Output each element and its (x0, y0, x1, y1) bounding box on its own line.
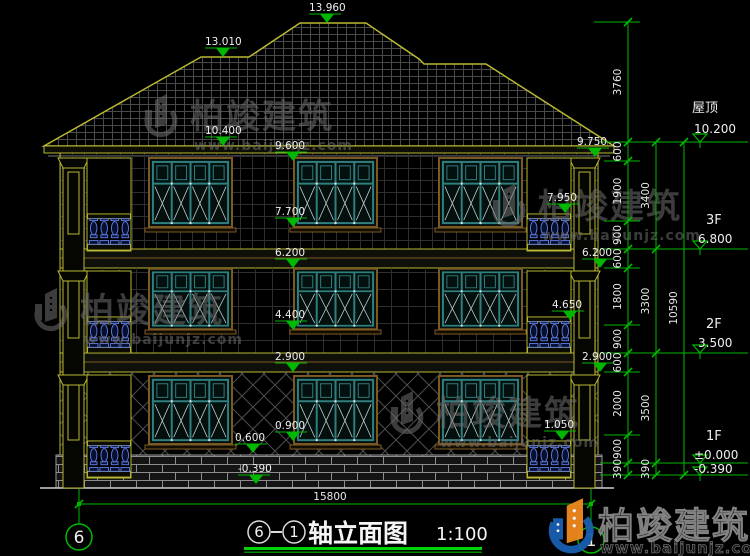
svg-text:900: 900 (612, 225, 624, 245)
title-scale: 1:100 (436, 524, 488, 545)
title-text: 轴立面图 (308, 519, 408, 548)
overall-width-dim: 15800 (313, 491, 346, 503)
title-axis-from: 6 (254, 523, 264, 541)
svg-text:0.900: 0.900 (275, 420, 305, 432)
svg-text:3760: 3760 (612, 69, 624, 96)
svg-text:600: 600 (612, 141, 624, 161)
watermark-url: www.baijunjz.com (440, 435, 599, 451)
svg-text:10590: 10590 (668, 291, 680, 324)
svg-text:6.200: 6.200 (582, 247, 612, 259)
window-1f-left (149, 376, 232, 444)
floor1-elevation: ±0.000 (694, 448, 738, 462)
svg-text:900: 900 (612, 439, 624, 459)
svg-text:10.400: 10.400 (205, 125, 242, 137)
floor2-label: 2F (706, 317, 722, 332)
title-underline-primary (244, 547, 482, 550)
brand-url: www.baijunjz.com (600, 539, 750, 556)
svg-text:7.950: 7.950 (547, 192, 577, 204)
drawing-title: 6 1 轴立面图 1:100 (244, 519, 488, 553)
roof-elevation: 10.200 (694, 122, 736, 136)
floor1-below-elevation: -0.390 (694, 462, 733, 476)
svg-text:1900: 1900 (612, 178, 624, 205)
watermark-brand: 柏竣建筑 (80, 291, 224, 331)
floor1-label: 1F (706, 429, 722, 444)
svg-text:13.960: 13.960 (309, 2, 346, 14)
title-underline-secondary (244, 552, 482, 554)
level-triangles (693, 134, 707, 481)
svg-text:2.900: 2.900 (275, 351, 305, 363)
axis-bubble-6-label: 6 (74, 528, 85, 548)
svg-text:9.600: 9.600 (275, 140, 305, 152)
svg-text:4.400: 4.400 (275, 309, 305, 321)
svg-text:4.650: 4.650 (552, 299, 582, 311)
window-2f-center (294, 269, 377, 329)
window-2f-right (439, 269, 522, 329)
cad-elevation-screenshot: 柏竣建筑 www.baijunjz.com 柏竣建筑 www.baijunjz.… (0, 0, 750, 556)
floor2-elevation: 3.500 (698, 336, 732, 350)
title-axis-to: 1 (289, 523, 299, 541)
svg-text:2000: 2000 (612, 390, 624, 417)
svg-text:2.900: 2.900 (582, 351, 612, 363)
watermark-url: www.baijunjz.com (194, 138, 353, 154)
plinth-brick (56, 455, 602, 488)
floor3-elevation: 6.800 (698, 232, 732, 246)
watermark-url: www.baijunjz.com (84, 332, 243, 348)
window-3f-center (294, 158, 377, 227)
window-1f-center (294, 376, 377, 444)
svg-text:6.200: 6.200 (275, 247, 305, 259)
svg-text:3500: 3500 (640, 395, 652, 422)
svg-text:13.010: 13.010 (205, 36, 242, 48)
svg-text:-0.390: -0.390 (238, 463, 272, 475)
dimension-chains: 600 1900 900 600 1800 900 600 2000 900 3… (594, 18, 748, 479)
svg-text:3300: 3300 (640, 288, 652, 315)
elevation-drawing: 柏竣建筑 www.baijunjz.com 柏竣建筑 www.baijunjz.… (0, 0, 750, 556)
watermark-bottom-right: 柏竣建筑 www.baijunjz.com (545, 498, 750, 556)
window-3f-left (149, 158, 232, 227)
svg-text:0.600: 0.600 (235, 432, 265, 444)
right-elevation-panel: 屋顶 10.200 3F 6.800 2F 3.500 1F ±0.000 -0… (692, 101, 738, 481)
svg-text:900: 900 (612, 329, 624, 349)
elevation-marker-peak: 13.960 (309, 2, 346, 23)
dimension-values-inner: 600 1900 900 600 1800 900 600 2000 900 3… (612, 141, 624, 479)
elevation-marker-ridge: 13.010 (205, 36, 242, 57)
svg-text:1.050: 1.050 (544, 419, 574, 431)
svg-text:9.750: 9.750 (577, 136, 607, 148)
floor3-label: 3F (706, 213, 722, 228)
svg-text:7.700: 7.700 (275, 206, 305, 218)
svg-text:390: 390 (612, 459, 624, 479)
svg-text:390: 390 (640, 459, 652, 479)
svg-text:3400: 3400 (640, 182, 652, 209)
roof-label: 屋顶 (692, 101, 718, 116)
svg-text:1800: 1800 (612, 283, 624, 310)
